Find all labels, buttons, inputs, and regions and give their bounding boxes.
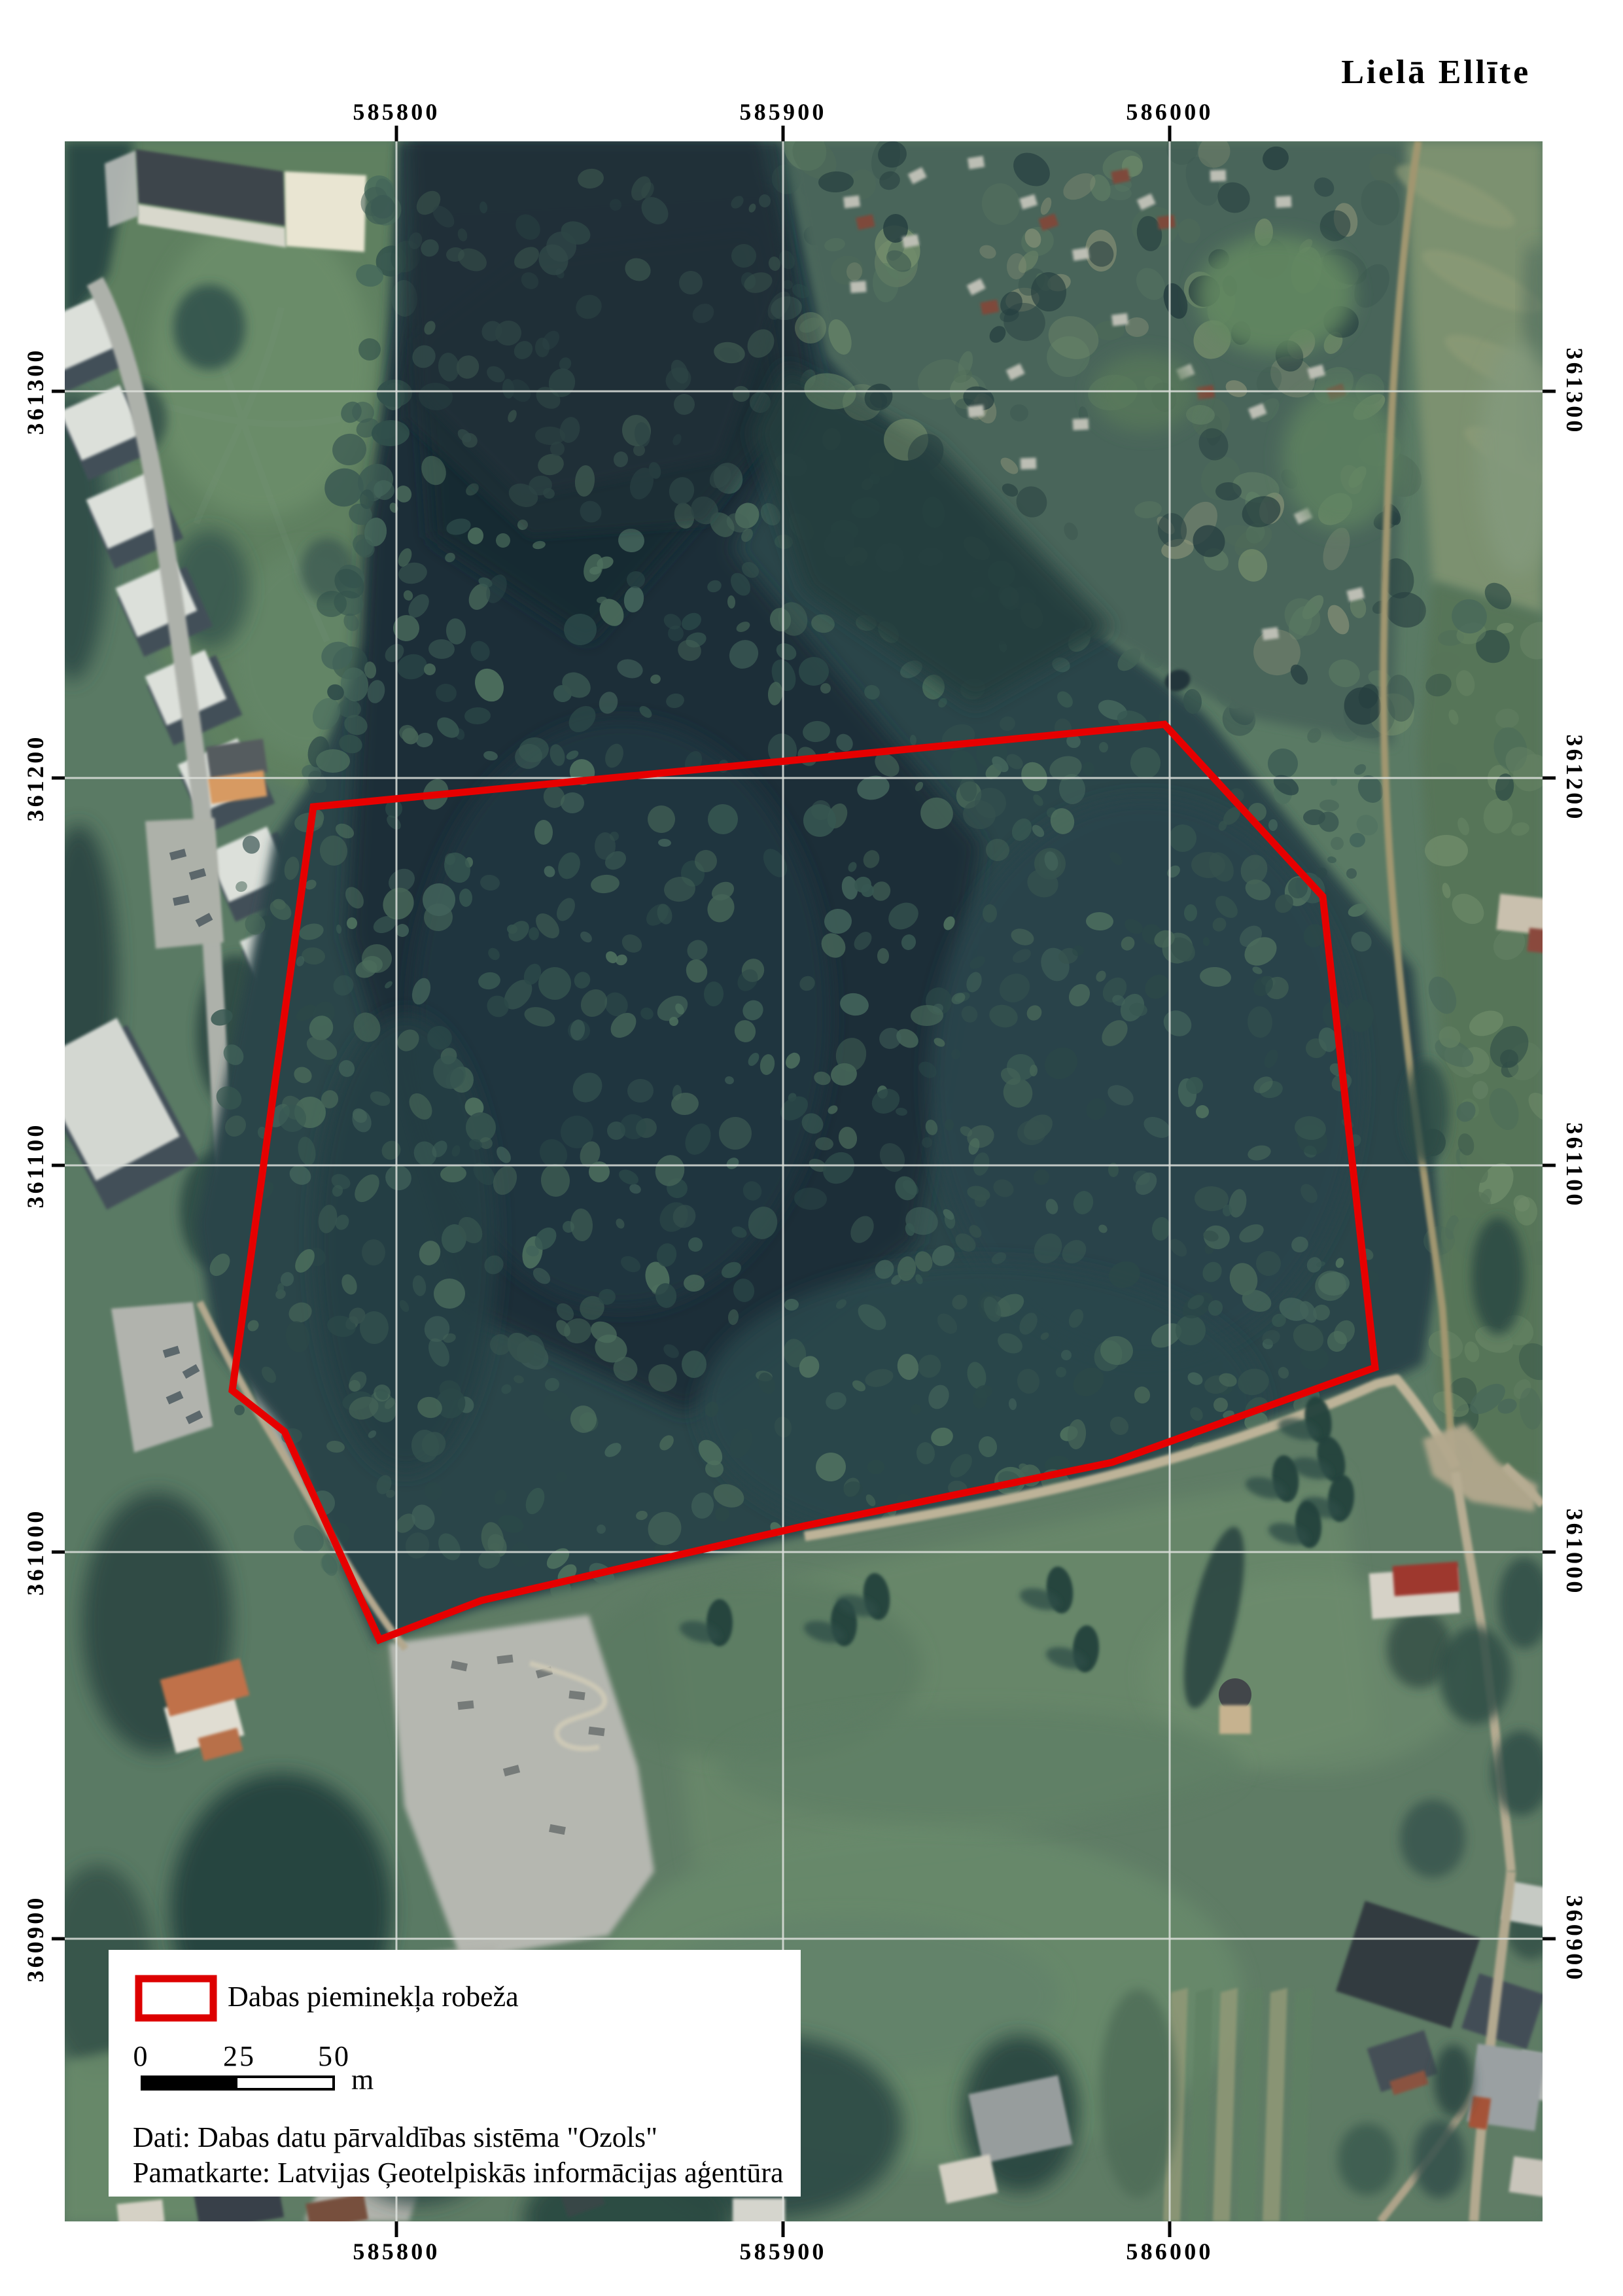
svg-text:50: 50 bbox=[318, 2040, 351, 2072]
svg-text:585900: 585900 bbox=[739, 99, 826, 125]
svg-text:Dabas pieminekļa robeža: Dabas pieminekļa robeža bbox=[228, 1981, 519, 2013]
svg-text:360900: 360900 bbox=[22, 1895, 48, 1982]
svg-text:25: 25 bbox=[223, 2040, 256, 2072]
svg-text:Dati: Dabas datu pārvaldības s: Dati: Dabas datu pārvaldības sistēma "Oz… bbox=[133, 2121, 657, 2153]
svg-text:360900: 360900 bbox=[1562, 1895, 1588, 1982]
svg-text:0: 0 bbox=[133, 2040, 150, 2072]
svg-text:585900: 585900 bbox=[739, 2238, 826, 2265]
svg-text:361200: 361200 bbox=[1562, 734, 1588, 821]
svg-text:m: m bbox=[351, 2064, 374, 2096]
svg-text:361300: 361300 bbox=[22, 347, 48, 434]
svg-text:586000: 586000 bbox=[1126, 2238, 1213, 2265]
svg-text:361300: 361300 bbox=[1562, 347, 1588, 434]
svg-text:361100: 361100 bbox=[22, 1122, 48, 1208]
svg-text:361000: 361000 bbox=[1562, 1508, 1588, 1595]
svg-text:361100: 361100 bbox=[1562, 1122, 1588, 1208]
svg-text:Pamatkarte: Latvijas Ģeotelpis: Pamatkarte: Latvijas Ģeotelpiskās inform… bbox=[133, 2157, 784, 2189]
svg-text:361200: 361200 bbox=[22, 734, 48, 821]
svg-text:585800: 585800 bbox=[353, 2238, 440, 2265]
svg-text:Lielā Ellīte: Lielā Ellīte bbox=[1341, 54, 1531, 91]
svg-text:585800: 585800 bbox=[353, 99, 440, 125]
svg-text:361000: 361000 bbox=[22, 1508, 48, 1595]
svg-text:586000: 586000 bbox=[1126, 99, 1213, 125]
